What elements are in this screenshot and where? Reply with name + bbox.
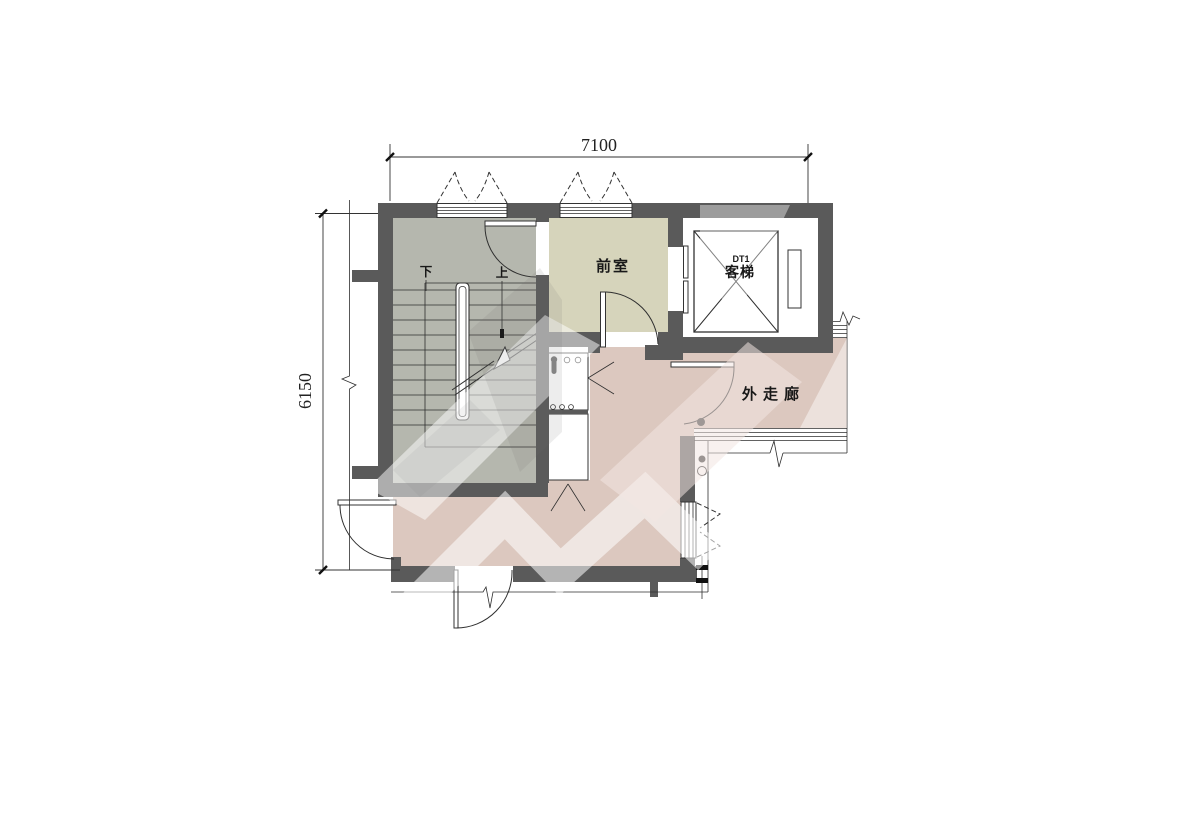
louver-window-top-right — [560, 172, 632, 218]
wall-pier — [650, 582, 658, 597]
floor-plan-drawing: 7100 6150 前室 外 走 廊 DT1 客梯 下 上 — [0, 0, 1198, 831]
wall-left — [378, 203, 393, 497]
door-leaf — [601, 292, 606, 347]
door-leaf — [338, 500, 396, 505]
wall-shaft-left — [668, 218, 683, 247]
door-left — [338, 500, 396, 559]
corridor-label: 外 走 廊 — [741, 385, 800, 403]
floor-plan-canvas: 7100 6150 前室 外 走 廊 DT1 客梯 下 上 — [0, 0, 1198, 831]
elevator-door-panel — [684, 281, 689, 313]
railing-break-icon — [833, 312, 860, 325]
axis-tick-icon — [696, 578, 708, 583]
stair-down-label: 下 — [420, 265, 433, 279]
vestibule-label: 前室 — [596, 257, 630, 275]
elevator-counterweight — [788, 250, 801, 308]
elevator-code-label: DT1 — [732, 254, 749, 264]
wall-stub-lower — [352, 466, 379, 479]
casement-swing-icon — [437, 172, 507, 203]
elevator-name-label: 客梯 — [724, 264, 755, 280]
louver-window-top-left — [437, 172, 507, 218]
stair-up-label: 上 — [496, 265, 509, 280]
door-leaf — [485, 221, 536, 226]
dimension-top-label: 7100 — [581, 135, 617, 155]
wall-shaft-right — [818, 203, 833, 353]
elevator-door-panel — [684, 246, 689, 278]
dimension-left-label: 6150 — [295, 373, 315, 409]
door-swing-arc — [340, 505, 394, 559]
vestibule-fill — [549, 218, 668, 332]
casement-swing-icon — [560, 172, 632, 203]
side-edge-break-line — [342, 200, 356, 570]
wall-stub-upper — [352, 270, 379, 282]
corridor-railing-right — [833, 312, 860, 338]
